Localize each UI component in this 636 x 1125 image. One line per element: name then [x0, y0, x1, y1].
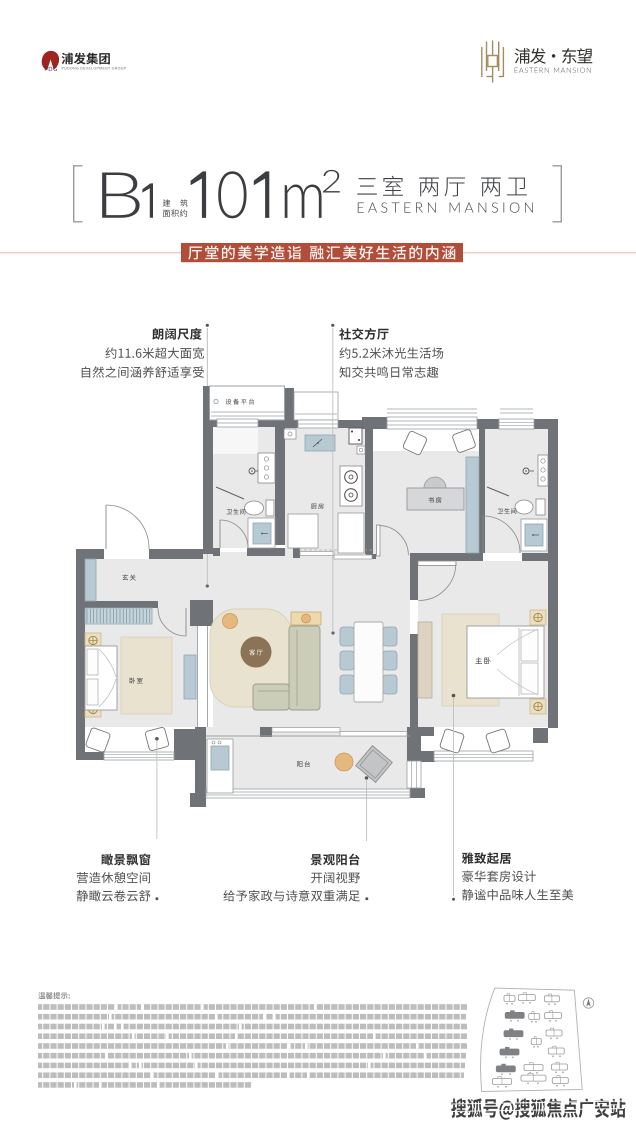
svg-text:PUDONG DEVELOPMENT GROUP: PUDONG DEVELOPMENT GROUP — [62, 67, 127, 71]
